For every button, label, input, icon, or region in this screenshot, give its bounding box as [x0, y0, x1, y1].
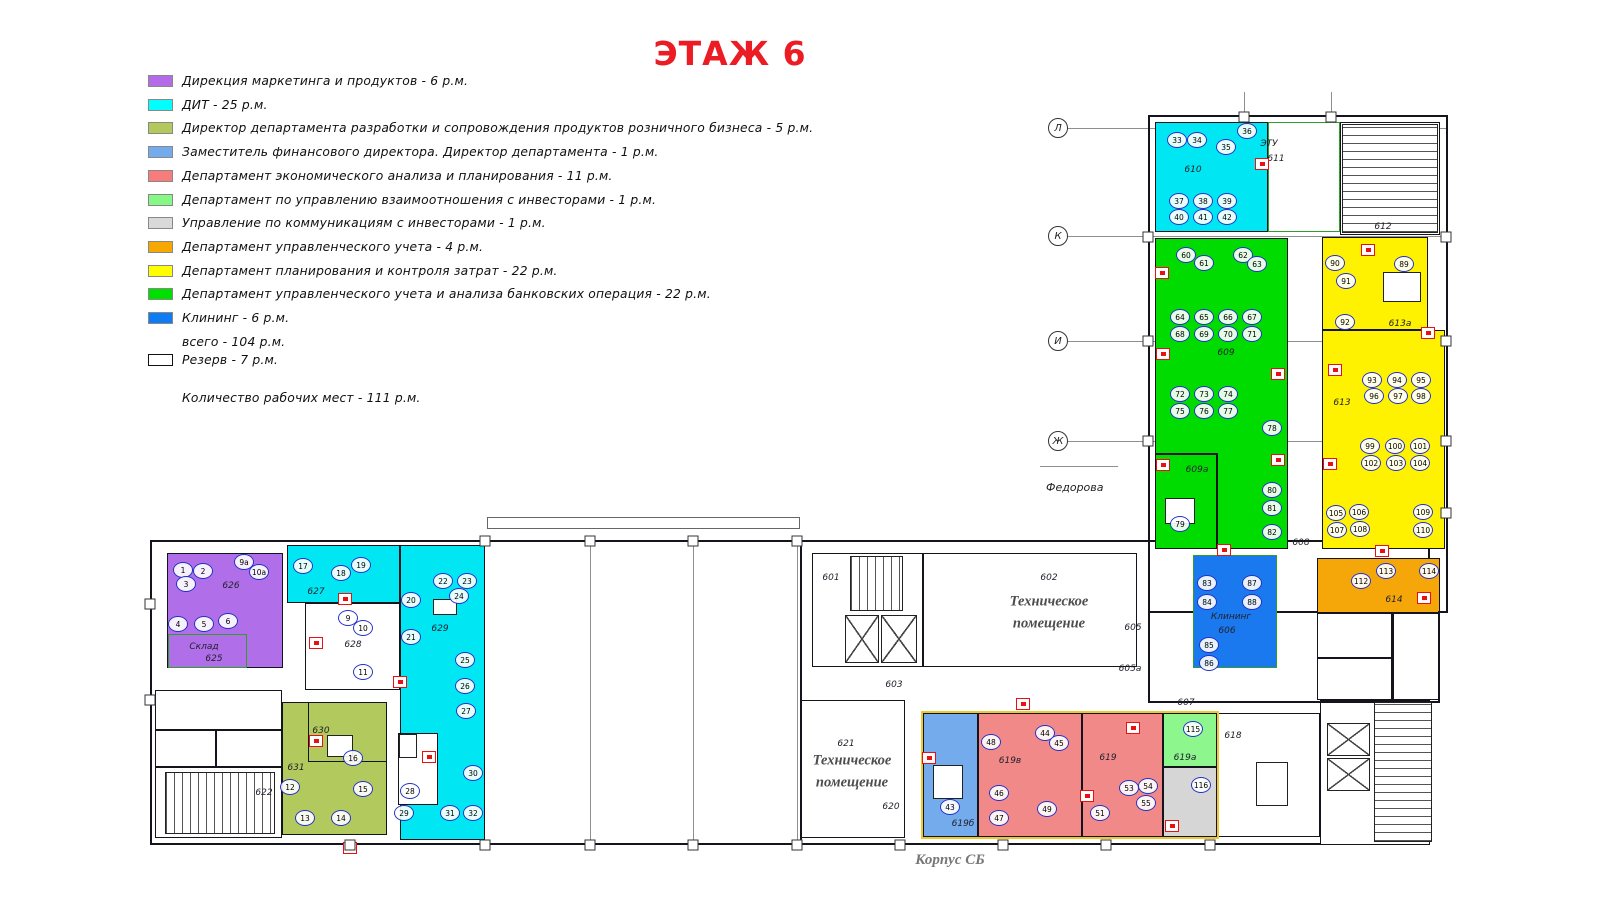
- desk-31: 31: [440, 805, 460, 821]
- room-label-620: 620: [882, 802, 899, 812]
- desk-23: 23: [457, 573, 477, 589]
- grid-marker-Ж: Ж: [1048, 431, 1068, 451]
- room-label-603: 603: [885, 680, 902, 690]
- desk-2: 2: [193, 563, 213, 579]
- column-tick: [792, 840, 803, 851]
- desk-105: 105: [1326, 505, 1346, 521]
- desk-47: 47: [989, 810, 1009, 826]
- desk-14: 14: [331, 810, 351, 826]
- desk-104: 104: [1410, 455, 1430, 471]
- room-label-613: 613: [1333, 398, 1350, 408]
- column-tick: [1143, 436, 1154, 447]
- room-label-631: 631: [287, 763, 304, 773]
- floorplan-drawing: 3334353637383940414260616263646566676869…: [0, 0, 1600, 900]
- desk-55: 55: [1136, 795, 1156, 811]
- room-label-609а: 609а: [1186, 465, 1209, 475]
- column-tick: [585, 840, 596, 851]
- room-label-610: 610: [1184, 165, 1201, 175]
- desk-63: 63: [1247, 256, 1267, 272]
- reserve-desk: [399, 734, 417, 758]
- elevator: [881, 615, 917, 663]
- room-wc-right: [1392, 613, 1440, 700]
- column-tick: [145, 599, 156, 610]
- desk-79: 79: [1170, 516, 1190, 532]
- room-label-626: 626: [222, 581, 239, 591]
- desk-60: 60: [1176, 247, 1196, 263]
- desk-65: 65: [1194, 309, 1214, 325]
- room-label-619: 619: [1099, 753, 1116, 763]
- desk-90: 90: [1325, 255, 1345, 271]
- room-label-ЭТУ: ЭТУ: [1260, 139, 1277, 149]
- desk-5: 5: [194, 616, 214, 632]
- wall-segment: [155, 729, 282, 731]
- column-tick: [345, 840, 356, 851]
- desk-38: 38: [1193, 193, 1213, 209]
- column-tick: [585, 536, 596, 547]
- stairs: [1374, 702, 1432, 842]
- desk-81: 81: [1262, 500, 1282, 516]
- desk-109: 109: [1413, 504, 1433, 520]
- desk-18: 18: [331, 565, 351, 581]
- wall-segment: [155, 766, 282, 768]
- desk-15: 15: [353, 781, 373, 797]
- column-tick: [688, 536, 699, 547]
- fire-extinguisher-icon: [1375, 545, 1389, 557]
- room-label-625: 625: [205, 654, 222, 664]
- room-611: [1268, 122, 1340, 232]
- desk-74: 74: [1218, 386, 1238, 402]
- fire-extinguisher-icon: [1271, 454, 1285, 466]
- desk-49: 49: [1037, 801, 1057, 817]
- fire-extinguisher-icon: [393, 676, 407, 688]
- desk-32: 32: [463, 805, 483, 821]
- desk-78: 78: [1262, 420, 1282, 436]
- desk-29: 29: [394, 805, 414, 821]
- desk-101: 101: [1410, 438, 1430, 454]
- desk-66: 66: [1218, 309, 1238, 325]
- corpus-label: Корпус СБ: [915, 849, 985, 872]
- desk-13: 13: [295, 810, 315, 826]
- room-label-619в: 619в: [999, 756, 1021, 766]
- meeting-table: [1383, 272, 1421, 302]
- fire-extinguisher-icon: [1271, 368, 1285, 380]
- wall-segment: [1317, 657, 1393, 659]
- column-tick: [1441, 508, 1452, 519]
- desk-102: 102: [1361, 455, 1381, 471]
- room-label-618: 618: [1224, 731, 1241, 741]
- fire-extinguisher-icon: [1421, 327, 1435, 339]
- wall-segment: [1155, 453, 1217, 455]
- desk-97: 97: [1388, 388, 1408, 404]
- desk-45: 45: [1049, 735, 1069, 751]
- stairs: [165, 772, 275, 834]
- column-tick: [792, 536, 803, 547]
- desk-110: 110: [1413, 522, 1433, 538]
- grid-line: [1040, 466, 1118, 467]
- desk-106: 106: [1349, 504, 1369, 520]
- room-label-627: 627: [307, 587, 324, 597]
- wall-segment: [1148, 611, 1150, 703]
- desk-99: 99: [1360, 438, 1380, 454]
- meeting-table: [1256, 762, 1288, 806]
- desk-86: 86: [1199, 655, 1219, 671]
- desk-84: 84: [1197, 594, 1217, 610]
- desk-4: 4: [168, 616, 188, 632]
- room-label-607: 607: [1177, 698, 1194, 708]
- desk-70: 70: [1218, 326, 1238, 342]
- desk-93: 93: [1362, 372, 1382, 388]
- desk-96: 96: [1364, 388, 1384, 404]
- room-label-613а: 613а: [1389, 319, 1412, 329]
- desk-41: 41: [1193, 209, 1213, 225]
- column-tick: [1143, 232, 1154, 243]
- zone-outline: [487, 517, 800, 529]
- desk-91: 91: [1336, 273, 1356, 289]
- grid-marker-И: И: [1048, 331, 1068, 351]
- desk-21: 21: [401, 629, 421, 645]
- fire-extinguisher-icon: [1126, 722, 1140, 734]
- desk-40: 40: [1169, 209, 1189, 225]
- desk-10а: 10а: [249, 564, 269, 580]
- column-tick: [1101, 840, 1112, 851]
- fire-extinguisher-icon: [338, 593, 352, 605]
- fire-extinguisher-icon: [309, 637, 323, 649]
- desk-34: 34: [1187, 132, 1207, 148]
- desk-48: 48: [981, 734, 1001, 750]
- column-tick: [1239, 112, 1250, 123]
- column-tick: [1441, 436, 1452, 447]
- desk-64: 64: [1170, 309, 1190, 325]
- desk-33: 33: [1167, 132, 1187, 148]
- room-label-619а: 619а: [1174, 753, 1197, 763]
- fire-extinguisher-icon: [309, 735, 323, 747]
- stairs: [850, 556, 903, 611]
- desk-116: 116: [1191, 777, 1211, 793]
- fire-extinguisher-icon: [1080, 790, 1094, 802]
- desk-25: 25: [455, 652, 475, 668]
- wall-segment: [215, 729, 217, 767]
- room-label-619б: 619б: [952, 819, 975, 829]
- column-tick: [998, 840, 1009, 851]
- desk-115: 115: [1183, 721, 1203, 737]
- desk-88: 88: [1242, 594, 1262, 610]
- desk-36: 36: [1237, 123, 1257, 139]
- desk-19: 19: [351, 557, 371, 573]
- elevator: [845, 615, 879, 663]
- desk-107: 107: [1327, 522, 1347, 538]
- column-tick: [1205, 840, 1216, 851]
- room-label-602: 602: [1040, 573, 1057, 583]
- elevator: [1327, 758, 1370, 791]
- room-label-621: 621: [837, 739, 854, 749]
- desk-80: 80: [1262, 482, 1282, 498]
- desk-39: 39: [1217, 193, 1237, 209]
- room-label-608: 608: [1292, 538, 1309, 548]
- desk-22: 22: [433, 573, 453, 589]
- desk-54: 54: [1138, 778, 1158, 794]
- column-tick: [688, 840, 699, 851]
- desk-6: 6: [218, 613, 238, 629]
- desk-100: 100: [1385, 438, 1405, 454]
- fire-extinguisher-icon: [922, 752, 936, 764]
- desk-30: 30: [463, 765, 483, 781]
- fire-extinguisher-icon: [1016, 698, 1030, 710]
- grid-marker-Л: Л: [1048, 118, 1068, 138]
- room-label-629: 629: [431, 624, 448, 634]
- fire-extinguisher-icon: [1156, 348, 1170, 360]
- fire-extinguisher-icon: [422, 751, 436, 763]
- desk-103: 103: [1386, 455, 1406, 471]
- column-tick: [895, 840, 906, 851]
- column-tick: [1143, 336, 1154, 347]
- desk-53: 53: [1119, 780, 1139, 796]
- desk-27: 27: [456, 703, 476, 719]
- fire-extinguisher-icon: [1155, 267, 1169, 279]
- room-label-612: 612: [1374, 222, 1391, 232]
- desk-76: 76: [1194, 403, 1214, 419]
- elevator: [1327, 723, 1370, 756]
- desk-87: 87: [1242, 575, 1262, 591]
- desk-46: 46: [989, 785, 1009, 801]
- street-label: Федорова: [1046, 481, 1104, 494]
- room-label-628: 628: [344, 640, 361, 650]
- desk-51: 51: [1090, 805, 1110, 821]
- desk-98: 98: [1411, 388, 1431, 404]
- room-label-622: 622: [255, 788, 272, 798]
- column-tick: [145, 695, 156, 706]
- floor-plan-page: ЭТАЖ 6 Дирекция маркетинга и продуктов -…: [0, 0, 1600, 900]
- desk-94: 94: [1387, 372, 1407, 388]
- desk-92: 92: [1335, 314, 1355, 330]
- desk-75: 75: [1170, 403, 1190, 419]
- room-label-605: 605: [1124, 623, 1141, 633]
- desk-3: 3: [176, 576, 196, 592]
- fire-extinguisher-icon: [1361, 244, 1375, 256]
- desk-68: 68: [1170, 326, 1190, 342]
- desk-61: 61: [1194, 255, 1214, 271]
- desk-43: 43: [940, 799, 960, 815]
- desk-113: 113: [1376, 563, 1396, 579]
- desk-112: 112: [1351, 573, 1371, 589]
- room-label-609: 609: [1217, 348, 1234, 358]
- desk-69: 69: [1194, 326, 1214, 342]
- desk-10: 10: [353, 620, 373, 636]
- tech-room-label: Техническоепомещение: [813, 750, 892, 794]
- room-label-Склад: Склад: [189, 642, 218, 652]
- fire-extinguisher-icon: [1328, 364, 1342, 376]
- desk-37: 37: [1169, 193, 1189, 209]
- desk-24: 24: [449, 588, 469, 604]
- room-label-Клининг: Клининг: [1211, 612, 1251, 622]
- room-label-611: 611: [1267, 154, 1284, 164]
- wall-segment: [1438, 611, 1440, 703]
- wall-segment: [800, 543, 802, 845]
- wall-segment: [1216, 453, 1218, 549]
- column-tick: [1326, 112, 1337, 123]
- desk-28: 28: [400, 783, 420, 799]
- desk-77: 77: [1218, 403, 1238, 419]
- room-label-605а: 605а: [1119, 664, 1142, 674]
- desk-73: 73: [1194, 386, 1214, 402]
- desk-16: 16: [343, 750, 363, 766]
- desk-17: 17: [293, 558, 313, 574]
- meeting-table: [933, 765, 963, 799]
- fire-extinguisher-icon: [1323, 458, 1337, 470]
- desk-26: 26: [455, 678, 475, 694]
- column-tick: [1441, 232, 1452, 243]
- desk-85: 85: [1199, 637, 1219, 653]
- fire-extinguisher-icon: [1417, 592, 1431, 604]
- column-tick: [480, 536, 491, 547]
- desk-83: 83: [1197, 575, 1217, 591]
- desk-108: 108: [1350, 521, 1370, 537]
- room-label-614: 614: [1385, 595, 1402, 605]
- desk-67: 67: [1242, 309, 1262, 325]
- desk-82: 82: [1262, 524, 1282, 540]
- desk-114: 114: [1419, 563, 1439, 579]
- desk-35: 35: [1216, 139, 1236, 155]
- desk-42: 42: [1217, 209, 1237, 225]
- stairs: [1342, 124, 1438, 233]
- room-label-601: 601: [822, 573, 839, 583]
- desk-12: 12: [280, 779, 300, 795]
- desk-89: 89: [1394, 256, 1414, 272]
- fire-extinguisher-icon: [1165, 820, 1179, 832]
- desk-72: 72: [1170, 386, 1190, 402]
- column-tick: [1441, 336, 1452, 347]
- tech-room-label: Техническоепомещение: [1010, 591, 1089, 635]
- desk-95: 95: [1411, 372, 1431, 388]
- desk-20: 20: [401, 592, 421, 608]
- room-label-606: 606: [1218, 626, 1235, 636]
- desk-11: 11: [353, 664, 373, 680]
- desk-71: 71: [1242, 326, 1262, 342]
- column-tick: [480, 840, 491, 851]
- fire-extinguisher-icon: [1255, 158, 1269, 170]
- fire-extinguisher-icon: [1217, 544, 1231, 556]
- grid-marker-К: К: [1048, 226, 1068, 246]
- fire-extinguisher-icon: [1156, 459, 1170, 471]
